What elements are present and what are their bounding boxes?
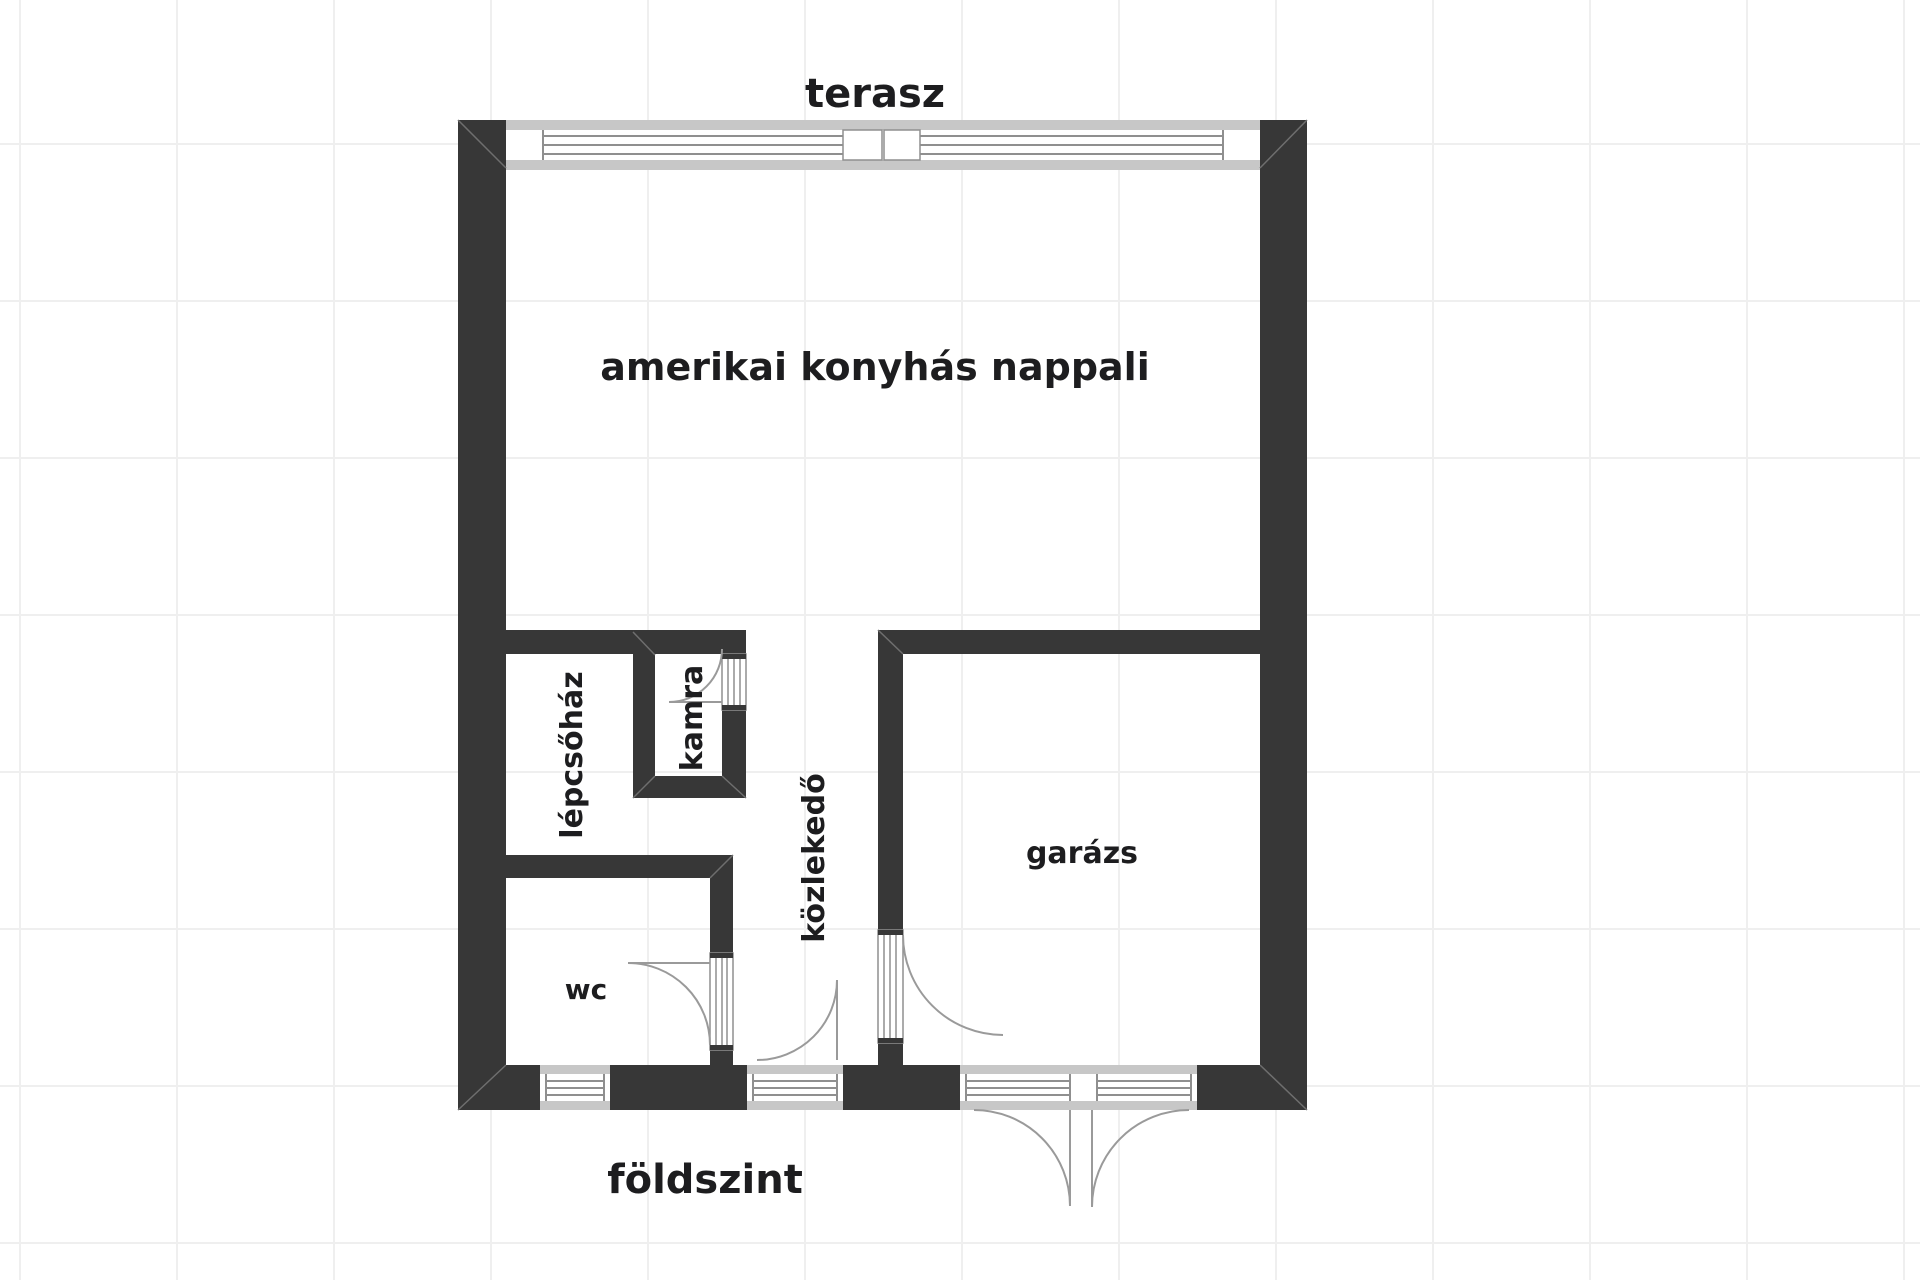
wc-right-wall-stub — [710, 1050, 733, 1065]
garage-door-jamb — [878, 930, 903, 1043]
jamb-cap — [722, 654, 746, 659]
floor-title: földszint — [607, 1157, 803, 1203]
window-mullion-panel — [884, 130, 920, 160]
floor-plan: terasz amerikai konyhás nappali lépcsőhá… — [0, 0, 1920, 1280]
bottom-wall-segment — [1197, 1065, 1260, 1110]
pantry-door-jamb — [722, 654, 746, 710]
jamb-cap — [878, 930, 903, 935]
window-frame-inner — [540, 1065, 610, 1074]
bottom-wall-segment — [610, 1065, 747, 1110]
terrace-window-wall — [506, 120, 1260, 170]
jamb-cap — [710, 953, 733, 958]
garage-top-wall — [878, 630, 1262, 654]
pantry-bottom-wall — [633, 776, 746, 798]
bottom-wall-segment — [843, 1065, 960, 1110]
garage-left-wall — [878, 630, 903, 930]
left-exterior-wall — [458, 120, 506, 1110]
door-frame-inner — [747, 1065, 843, 1074]
wc-right-wall — [710, 878, 733, 953]
jamb-cap — [878, 1038, 903, 1043]
window-mullion-panel — [843, 130, 882, 160]
garage-french-door — [960, 1065, 1197, 1110]
door-frame-outer — [960, 1101, 1197, 1110]
door-frame-inner — [960, 1065, 1197, 1074]
pantry-label: kamra — [675, 665, 710, 772]
wc-label: wc — [565, 973, 607, 1006]
wc-top-wall — [500, 855, 733, 878]
hallway-label: közlekedő — [797, 773, 832, 942]
staircase-top-wall — [500, 630, 746, 654]
wc-window — [540, 1065, 610, 1110]
window-frame-outer — [540, 1101, 610, 1110]
entrance-door — [747, 1065, 843, 1110]
window-frame-outer — [506, 120, 1260, 130]
door-frame-outer — [747, 1101, 843, 1110]
wc-door-jamb — [710, 953, 733, 1050]
garage-left-wall-stub — [878, 1043, 903, 1065]
pantry-left-wall — [633, 654, 655, 776]
garage-label: garázs — [1026, 836, 1138, 871]
jamb-cap — [710, 1045, 733, 1050]
terrace-label: terasz — [805, 71, 945, 117]
right-exterior-wall — [1260, 120, 1307, 1110]
pantry-right-wall — [722, 710, 746, 776]
staircase-label: lépcsőház — [555, 671, 590, 838]
window-frame-inner — [506, 160, 1260, 170]
jamb-cap — [722, 705, 746, 710]
living-room-label: amerikai konyhás nappali — [600, 345, 1149, 389]
